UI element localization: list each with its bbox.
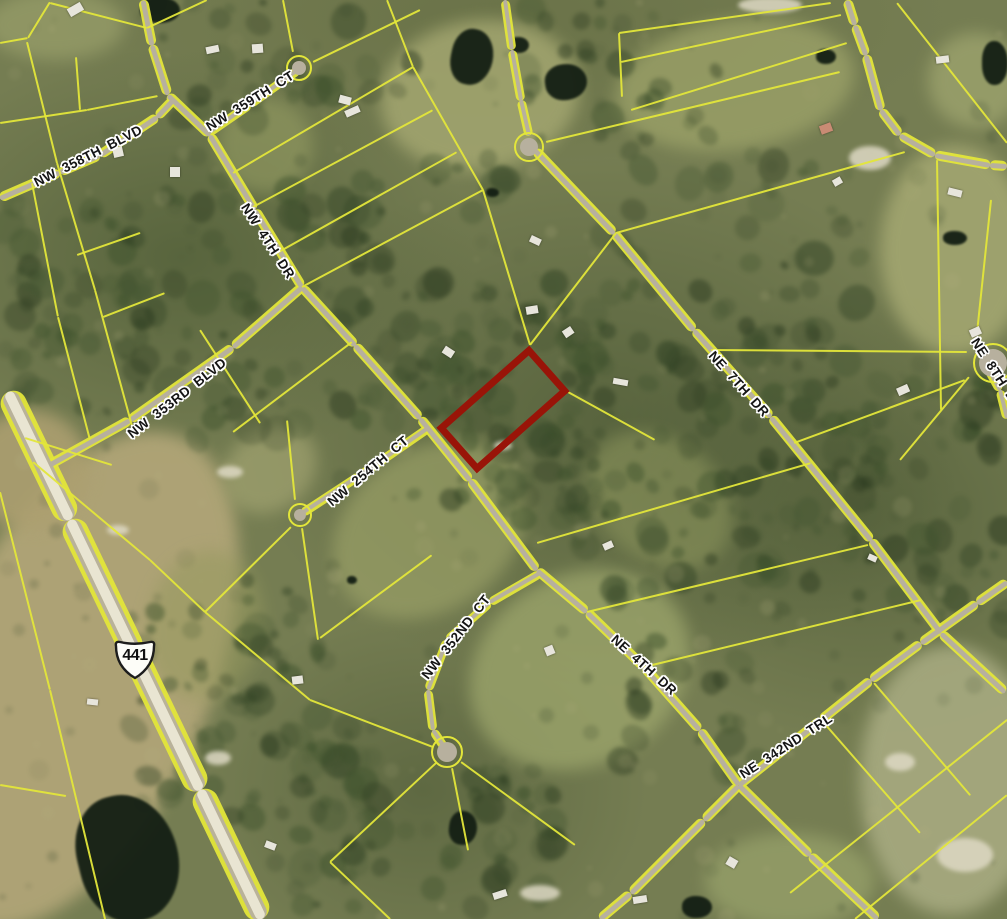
tree-canopy (186, 189, 217, 224)
terrain-texture (197, 498, 207, 508)
terrain-texture (588, 881, 604, 897)
tree-canopy (182, 326, 194, 341)
tree-canopy (932, 435, 950, 454)
tree-canopy (851, 586, 869, 603)
terrain-texture (769, 290, 774, 295)
tree-canopy (984, 605, 1007, 646)
tree-canopy (367, 854, 394, 881)
pond-water (943, 231, 967, 245)
building-rooftop (602, 540, 614, 550)
terrain-texture (153, 593, 163, 603)
terrain-texture (944, 273, 960, 289)
terrain-texture (5, 706, 13, 714)
terrain-texture (294, 154, 307, 167)
terrain-texture (188, 245, 194, 251)
terrain-texture (522, 450, 535, 463)
bare-sand-patch (217, 466, 243, 478)
tree-canopy (451, 163, 464, 173)
terrain-texture (911, 354, 930, 373)
tree-canopy (988, 550, 999, 561)
terrain-texture (363, 286, 374, 297)
terrain-texture (832, 679, 846, 693)
tree-canopy (380, 273, 396, 290)
terrain-texture (129, 74, 145, 90)
terrain-texture (643, 770, 657, 784)
cul-de-sac-ring (514, 132, 544, 162)
street-label-ne-342nd-trl: NE 342ND TRL (737, 710, 835, 781)
tree-canopy (595, 0, 605, 9)
terrain-texture (979, 389, 995, 405)
terrain-texture (759, 367, 766, 374)
route-number: 441 (112, 647, 158, 665)
tree-canopy (400, 289, 413, 302)
terrain-texture (339, 4, 353, 18)
tree-canopy (673, 164, 708, 203)
terrain-texture (631, 762, 638, 769)
terrain-texture (856, 221, 863, 228)
terrain-texture (783, 534, 789, 540)
street-road (612, 231, 696, 331)
tree-canopy (845, 245, 873, 272)
terrain-texture (450, 529, 459, 538)
tree-canopy (460, 200, 486, 224)
street-road (533, 148, 616, 234)
tree-canopy (288, 823, 315, 846)
terrain-texture (996, 31, 1002, 37)
tree-canopy (645, 8, 662, 25)
tree-canopy (867, 502, 876, 511)
pasture-field (860, 645, 1007, 915)
terrain-texture (193, 724, 198, 729)
building-rooftop (632, 895, 647, 904)
tree-canopy (945, 492, 974, 523)
terrain-texture (935, 586, 947, 598)
terrain-texture (299, 257, 305, 263)
pasture-field (880, 145, 1007, 355)
tree-canopy (78, 330, 102, 355)
terrain-texture (154, 191, 170, 207)
terrain-texture (420, 822, 436, 838)
terrain-texture (247, 59, 255, 67)
tree-canopy (344, 898, 363, 916)
tree-canopy (492, 858, 518, 885)
terrain-texture (534, 274, 539, 279)
tree-canopy (762, 512, 776, 525)
terrain-texture (410, 768, 414, 772)
terrain-texture (187, 147, 207, 167)
terrain-texture (483, 283, 497, 297)
terrain-texture (822, 516, 831, 525)
terrain-texture (230, 687, 238, 695)
tree-canopy (593, 426, 607, 440)
tree-canopy (156, 32, 169, 45)
terrain-texture (392, 496, 397, 501)
tree-canopy (262, 364, 287, 389)
terrain-texture (652, 512, 657, 517)
terrain-texture (420, 201, 432, 213)
terrain-texture (252, 732, 256, 736)
tree-canopy (912, 408, 926, 421)
terrain-texture (278, 799, 282, 803)
tree-canopy (258, 0, 267, 6)
terrain-texture (513, 463, 518, 468)
street-road (990, 163, 1007, 169)
terrain-texture (837, 903, 846, 912)
terrain-texture (47, 851, 58, 862)
terrain-texture (384, 763, 399, 778)
parcel-boundary-line (87, 95, 158, 111)
terrain-texture (287, 880, 305, 898)
pond-water (982, 41, 1007, 85)
terrain-texture (417, 735, 422, 740)
terrain-texture (937, 693, 951, 707)
terrain-texture (740, 416, 759, 435)
tree-canopy (591, 14, 607, 31)
tree-canopy (737, 508, 750, 521)
tree-canopy (589, 382, 619, 412)
terrain-texture (781, 214, 786, 219)
terrain-texture (13, 200, 29, 216)
tree-canopy (625, 328, 654, 357)
terrain-texture (13, 624, 25, 636)
terrain-texture (594, 489, 606, 501)
terrain-texture (190, 445, 207, 462)
tree-canopy (101, 406, 113, 418)
terrain-texture (760, 600, 775, 615)
terrain-texture (581, 672, 594, 685)
terrain-texture (695, 846, 714, 865)
terrain-texture (739, 546, 744, 551)
terrain-texture (513, 249, 526, 262)
terrain-texture (501, 758, 506, 763)
parcel-boundary-line (282, 0, 294, 52)
terrain-texture (667, 565, 685, 583)
terrain-texture (558, 357, 567, 366)
terrain-texture (637, 617, 645, 625)
tree-canopy (893, 630, 907, 644)
tree-canopy (616, 194, 651, 227)
terrain-texture (165, 52, 170, 57)
terrain-texture (637, 34, 651, 48)
terrain-texture (65, 727, 75, 737)
terrain-texture (211, 167, 220, 176)
building-rooftop (252, 43, 264, 52)
tree-canopy (417, 872, 451, 906)
terrain-texture (398, 55, 407, 64)
terrain-texture (592, 44, 606, 58)
bare-sand-patch (885, 753, 915, 771)
terrain-texture (347, 675, 353, 681)
terrain-texture (85, 188, 93, 196)
terrain-texture (904, 151, 908, 155)
terrain-texture (804, 257, 815, 268)
tree-canopy (395, 822, 415, 841)
tree-canopy (242, 8, 276, 40)
terrain-texture (873, 416, 887, 430)
building-rooftop (832, 177, 843, 188)
terrain-texture (156, 328, 161, 333)
street-road (598, 891, 632, 919)
tree-canopy (273, 803, 293, 823)
terrain-texture (715, 254, 721, 260)
terrain-texture (460, 549, 478, 567)
building-rooftop (292, 676, 304, 685)
tree-canopy (510, 507, 537, 531)
tree-canopy (219, 330, 229, 339)
terrain-texture (758, 711, 773, 726)
terrain-texture (829, 650, 839, 660)
terrain-texture (718, 909, 735, 919)
terrain-texture (900, 374, 904, 378)
tree-canopy (569, 10, 592, 33)
terrain-texture (838, 711, 850, 723)
terrain-texture (96, 412, 100, 416)
terrain-texture (132, 773, 143, 784)
terrain-texture (316, 651, 336, 671)
aerial-parcel-map[interactable]: 441 NW 359TH CTNW 358TH BLVDNW 4TH DRNW … (0, 0, 1007, 919)
terrain-texture (887, 163, 896, 172)
terrain-texture (787, 251, 805, 269)
terrain-texture (78, 209, 94, 225)
tree-canopy (779, 285, 801, 302)
terrain-texture (482, 300, 491, 309)
terrain-texture (8, 67, 21, 80)
terrain-texture (890, 511, 901, 522)
terrain-texture (127, 192, 132, 197)
building-rooftop-red (819, 122, 833, 135)
tree-canopy (831, 277, 883, 329)
tree-canopy (638, 132, 654, 145)
terrain-texture (8, 274, 21, 287)
terrain-texture (657, 364, 667, 374)
tree-canopy (812, 345, 830, 362)
terrain-texture (312, 41, 322, 51)
terrain-texture (25, 883, 32, 890)
terrain-texture (29, 760, 49, 780)
terrain-texture (56, 356, 67, 367)
building-rooftop (264, 840, 277, 850)
terrain-texture (705, 864, 719, 878)
terrain-texture (738, 593, 749, 604)
terrain-texture (32, 740, 41, 749)
terrain-texture (648, 561, 656, 569)
tree-canopy (710, 301, 729, 322)
terrain-texture (228, 33, 245, 50)
street-road (702, 783, 741, 822)
tree-canopy (684, 275, 717, 308)
terrain-texture (555, 625, 569, 639)
terrain-texture (262, 388, 271, 397)
tree-canopy (810, 522, 824, 537)
terrain-texture (636, 0, 643, 6)
terrain-texture (752, 681, 766, 695)
pasture-field (0, 0, 125, 60)
terrain-texture (168, 620, 176, 628)
terrain-texture (0, 894, 6, 901)
terrain-texture (82, 615, 89, 622)
building-rooftop (86, 698, 97, 705)
terrain-texture (778, 727, 784, 733)
terrain-texture (266, 853, 285, 872)
terrain-texture (438, 337, 444, 343)
us-highway-441-shield: 441 (112, 638, 158, 680)
terrain-texture (589, 249, 597, 257)
terrain-texture (71, 653, 78, 660)
terrain-texture (474, 257, 479, 262)
terrain-texture (791, 237, 797, 243)
building-rooftop (612, 378, 628, 387)
tree-canopy (550, 449, 560, 460)
terrain-texture (198, 578, 204, 584)
terrain-texture (52, 17, 57, 22)
terrain-texture (584, 234, 589, 239)
tree-canopy (635, 372, 661, 394)
terrain-texture (475, 235, 489, 249)
terrain-texture (123, 201, 143, 221)
building-rooftop (170, 167, 179, 177)
pond-water (347, 576, 357, 584)
terrain-texture (302, 862, 314, 874)
terrain-texture (438, 903, 446, 911)
tree-canopy (791, 358, 804, 373)
tree-canopy (240, 702, 263, 723)
tree-canopy (905, 454, 933, 483)
building-rooftop (529, 235, 542, 246)
tree-canopy (978, 566, 993, 580)
pond-water (682, 896, 712, 918)
terrain-texture (918, 826, 931, 839)
parcel-boundary-line (75, 57, 81, 110)
terrain-texture (185, 223, 197, 235)
terrain-texture (691, 658, 697, 664)
pond-water (486, 188, 499, 197)
tree-canopy (270, 630, 279, 639)
terrain-texture (787, 473, 796, 482)
terrain-texture (328, 588, 335, 595)
tree-canopy (703, 592, 717, 606)
terrain-texture (167, 198, 184, 215)
terrain-texture (336, 147, 341, 152)
bare-sand-patch (520, 885, 560, 901)
cul-de-sac-ring (288, 503, 312, 527)
terrain-texture (545, 226, 557, 238)
terrain-texture (587, 866, 591, 870)
terrain-texture (820, 781, 826, 787)
tree-canopy (739, 253, 762, 274)
terrain-texture (286, 360, 303, 377)
terrain-texture (207, 70, 227, 90)
bare-sand-patch (205, 751, 231, 765)
building-rooftop (344, 106, 360, 119)
terrain-texture (526, 164, 541, 179)
tree-canopy (982, 510, 1007, 551)
terrain-texture (332, 764, 348, 780)
terrain-texture (745, 326, 757, 338)
tree-canopy (796, 275, 823, 302)
terrain-texture (315, 231, 332, 248)
terrain-texture (277, 399, 285, 407)
